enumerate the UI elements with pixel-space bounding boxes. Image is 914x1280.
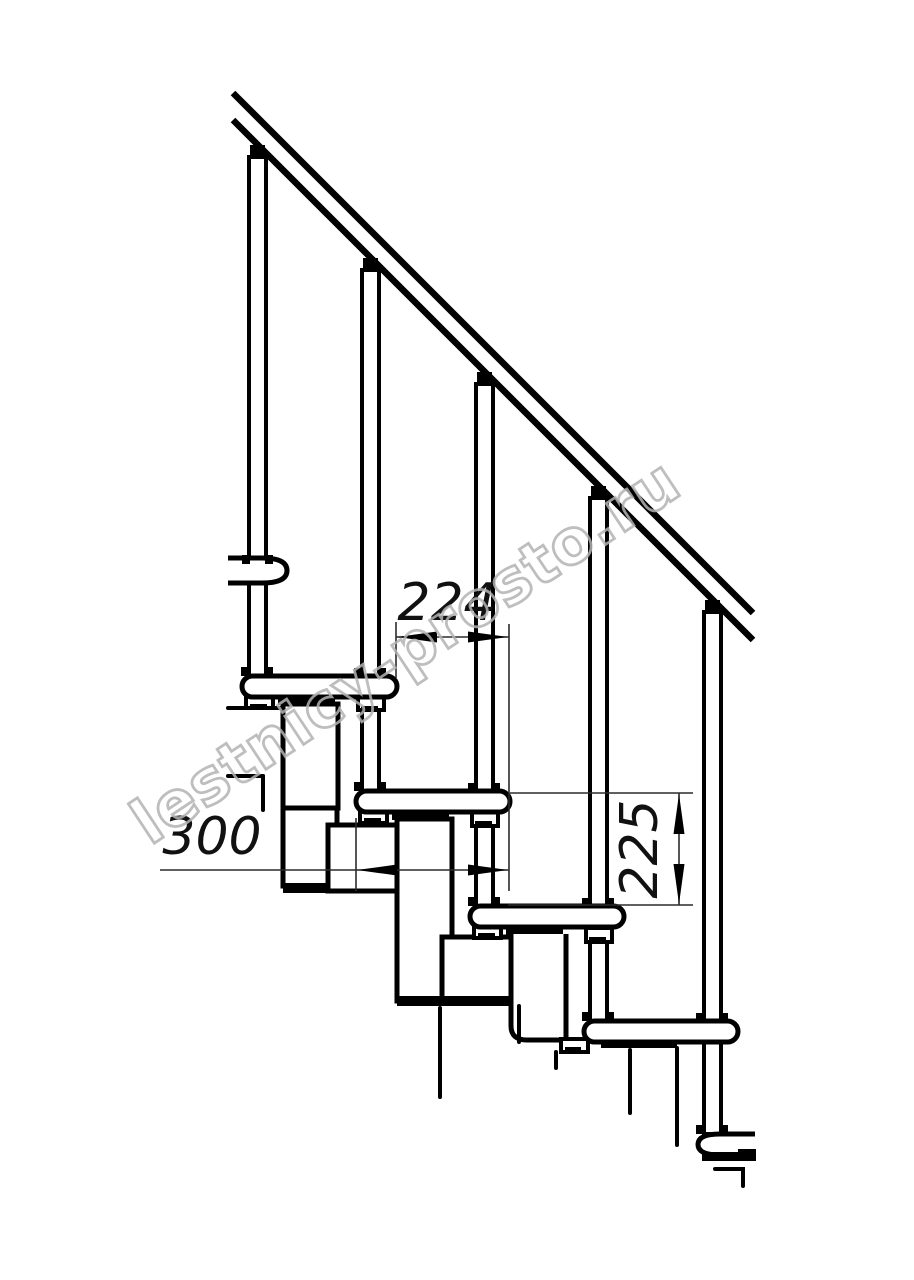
tread-3 [470,906,624,927]
staircase-drawing-page: 224 300 225 lestnicy-prosto.ru [0,0,914,1280]
tread-4 [584,1021,738,1042]
arrow-up-icon [674,794,685,834]
module-chain-4 [556,1039,677,1145]
bottom-cut-structure [702,1149,756,1186]
baluster-5 [704,612,721,1134]
dimension-rise-label: 225 [610,799,670,898]
tread-2 [356,791,510,812]
staircase-drawing-svg: 224 300 225 lestnicy-prosto.ru [0,0,914,1280]
baluster-1 [249,157,266,676]
tread-0-partial [228,558,287,583]
arrow-down-icon [674,864,685,904]
